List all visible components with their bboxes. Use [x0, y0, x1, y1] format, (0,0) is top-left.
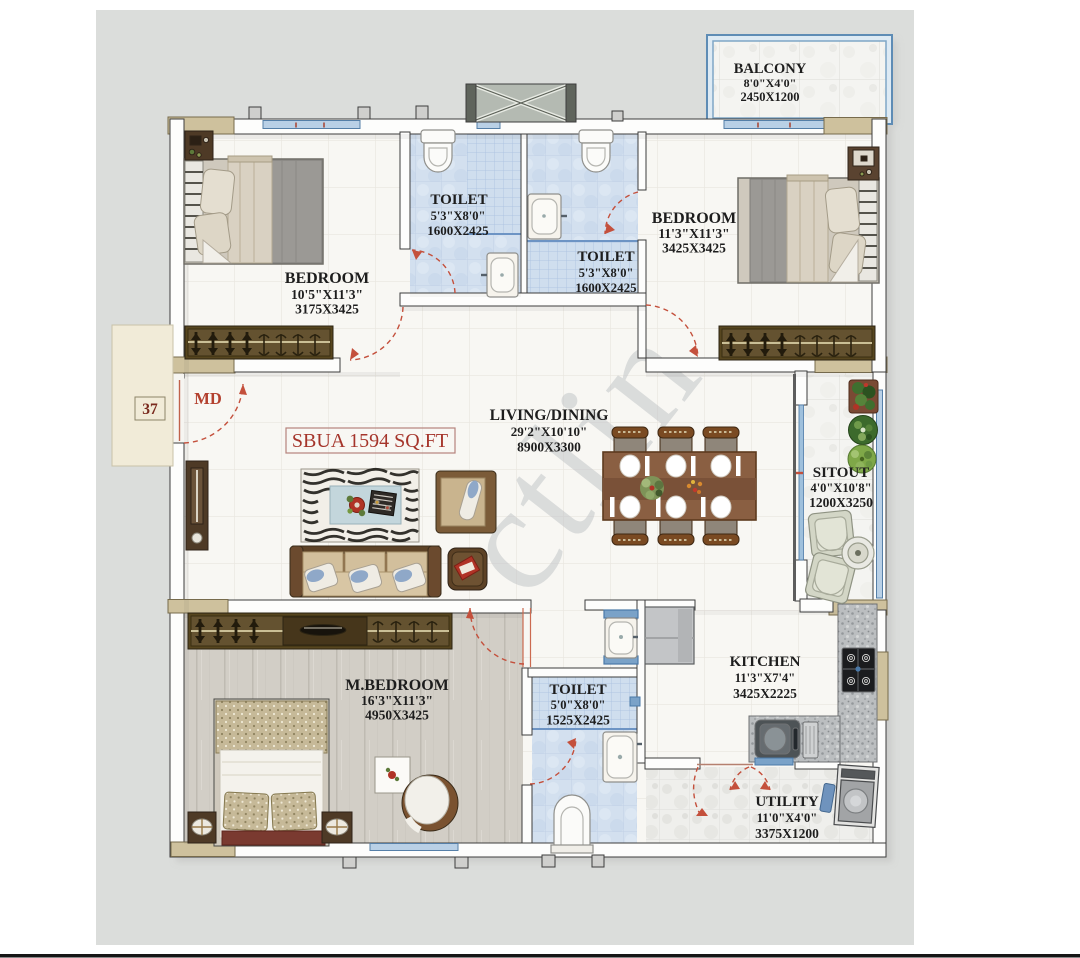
- svg-text:4'0"X10'8": 4'0"X10'8": [810, 481, 871, 495]
- svg-text:1600X2425: 1600X2425: [427, 223, 489, 238]
- svg-text:5'0"X8'0": 5'0"X8'0": [551, 698, 606, 712]
- svg-text:3425X2225: 3425X2225: [733, 686, 797, 701]
- svg-text:8900X3300: 8900X3300: [517, 440, 581, 455]
- svg-text:UTILITY: UTILITY: [755, 794, 819, 810]
- svg-text:1600X2425: 1600X2425: [575, 280, 637, 295]
- svg-text:1200X3250: 1200X3250: [809, 495, 873, 510]
- svg-text:11'3"X7'4": 11'3"X7'4": [735, 671, 795, 685]
- svg-text:M.BEDROOM: M.BEDROOM: [345, 677, 449, 694]
- svg-text:37: 37: [142, 401, 158, 418]
- svg-text:BEDROOM: BEDROOM: [652, 210, 736, 227]
- svg-text:MD: MD: [194, 389, 222, 408]
- svg-text:TOILET: TOILET: [430, 192, 487, 208]
- svg-text:TOILET: TOILET: [549, 682, 606, 698]
- svg-text:SITOUT: SITOUT: [813, 465, 869, 481]
- svg-text:2450X1200: 2450X1200: [740, 90, 799, 104]
- svg-text:SBUA 1594 SQ.FT: SBUA 1594 SQ.FT: [292, 430, 448, 452]
- svg-text:KITCHEN: KITCHEN: [730, 654, 801, 670]
- svg-text:3425X3425: 3425X3425: [662, 241, 726, 256]
- svg-text:5'3"X8'0": 5'3"X8'0": [431, 209, 486, 223]
- svg-text:11'3"X11'3": 11'3"X11'3": [658, 226, 729, 241]
- svg-text:TOILET: TOILET: [577, 249, 634, 265]
- svg-text:10'5"X11'3": 10'5"X11'3": [291, 287, 363, 302]
- svg-text:16'3"X11'3": 16'3"X11'3": [361, 693, 433, 708]
- svg-text:29'2"X10'10": 29'2"X10'10": [511, 424, 588, 439]
- svg-text:1525X2425: 1525X2425: [546, 713, 610, 728]
- svg-text:4950X3425: 4950X3425: [365, 708, 429, 723]
- svg-text:3375X1200: 3375X1200: [755, 826, 819, 841]
- svg-text:8'0"X4'0": 8'0"X4'0": [744, 76, 797, 90]
- svg-text:BEDROOM: BEDROOM: [285, 270, 369, 287]
- svg-text:BALCONY: BALCONY: [734, 61, 807, 77]
- svg-text:11'0"X4'0": 11'0"X4'0": [757, 811, 817, 825]
- svg-text:LIVING/DINING: LIVING/DINING: [490, 407, 609, 424]
- svg-text:3175X3425: 3175X3425: [295, 302, 359, 317]
- svg-text:5'3"X8'0": 5'3"X8'0": [579, 266, 634, 280]
